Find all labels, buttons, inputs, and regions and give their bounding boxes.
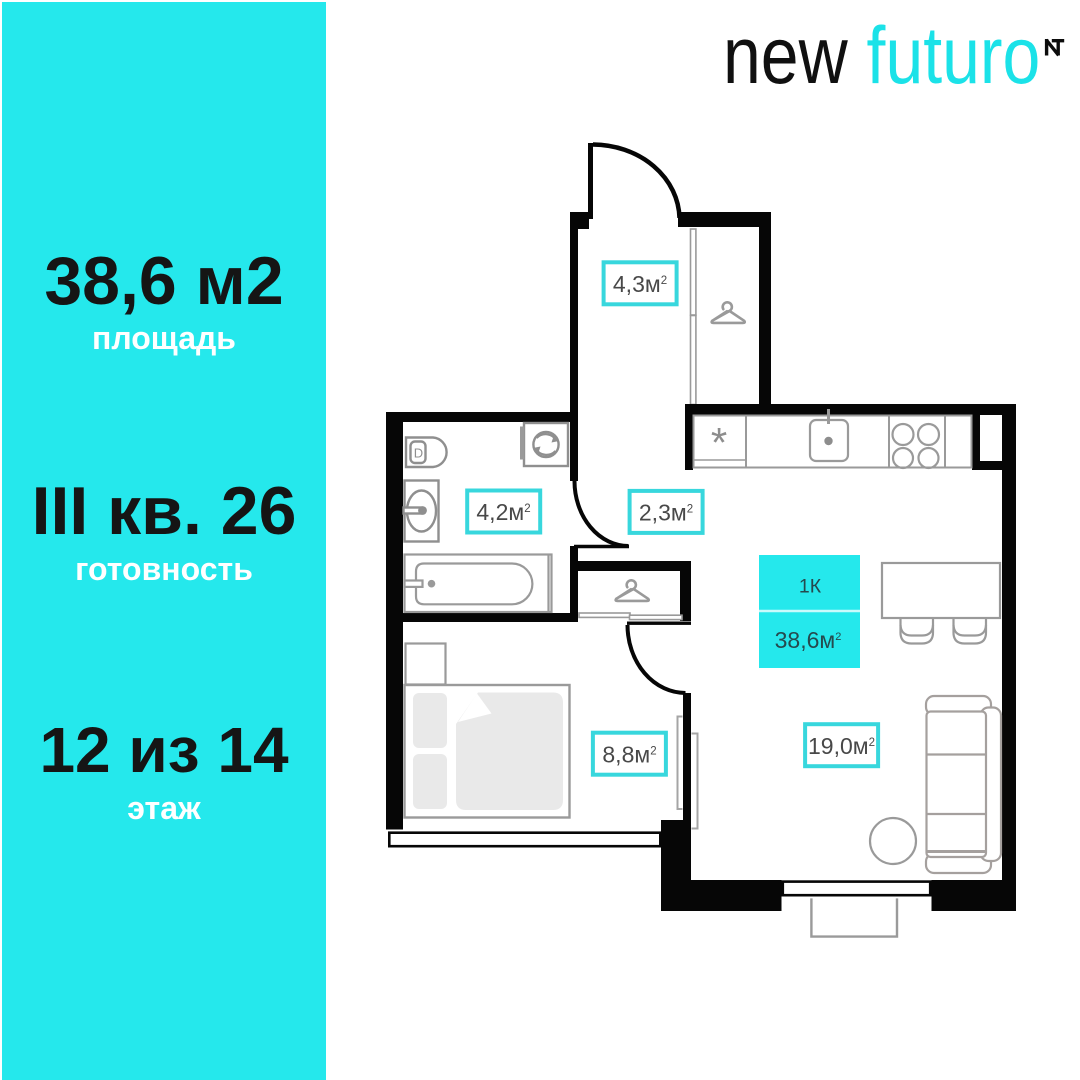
svg-text:8,8м2: 8,8м2 [602, 741, 656, 767]
svg-text:1К: 1К [799, 576, 822, 598]
svg-text:4,3м2: 4,3м2 [613, 271, 667, 297]
svg-text:19,0м2: 19,0м2 [808, 733, 875, 759]
svg-text:38,6м2: 38,6м2 [775, 627, 842, 653]
svg-text:*: * [711, 419, 727, 466]
svg-text:2,3м2: 2,3м2 [639, 500, 693, 526]
svg-text:4,2м2: 4,2м2 [476, 499, 530, 525]
svg-text:D: D [414, 446, 423, 461]
